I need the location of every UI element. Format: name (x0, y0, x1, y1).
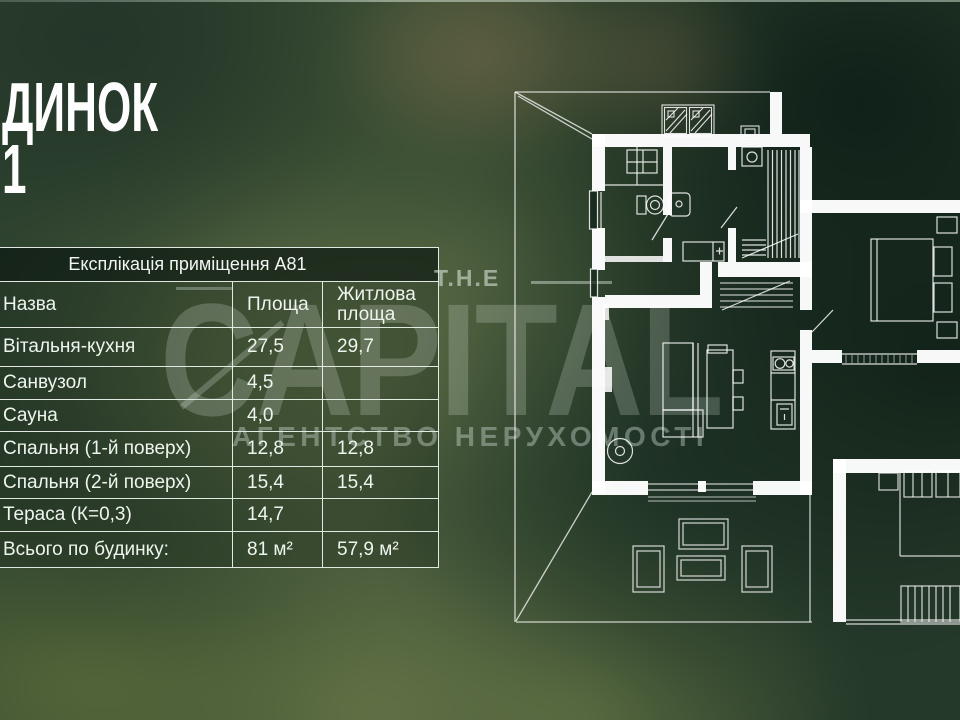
page-title-line2: 1 (2, 130, 27, 208)
room-name: Вітальня-кухня (0, 328, 233, 366)
room-area: 14,7 (233, 499, 323, 531)
room-area: 4,5 (233, 367, 323, 399)
top-edge-line (0, 0, 960, 2)
room-area: 15,4 (233, 467, 323, 498)
table-title: Експлікація приміщення А81 (0, 248, 438, 282)
room-area: 27,5 (233, 328, 323, 366)
room-living-area (323, 367, 437, 399)
laundry-appliances (662, 105, 714, 136)
table-row: Сауна 4,0 (0, 400, 438, 432)
room-name: Спальня (2-й поверх) (0, 467, 233, 498)
room-living-area: 12,8 (323, 432, 437, 466)
bathroom-fixtures (605, 147, 762, 261)
room-living-area: 15,4 (323, 467, 437, 498)
table-row: Тераса (К=0,3) 14,7 (0, 499, 438, 532)
table-row: Спальня (1-й поверх) 12,8 12,8 (0, 432, 438, 467)
living-room-furniture (608, 343, 744, 464)
floor-plan-drawing (505, 85, 960, 630)
room-name: Спальня (1-й поверх) (0, 432, 233, 466)
table-row: Спальня (2-й поверх) 15,4 15,4 (0, 467, 438, 499)
slide: T.H.E CAPITAL АГЕНТСТВО НЕРУХОМОСТІ ДИНО… (0, 0, 960, 720)
windows (590, 191, 918, 364)
room-area: 81 м² (233, 532, 323, 567)
guest-house (846, 471, 960, 624)
room-name: Тераса (К=0,3) (0, 499, 233, 531)
room-living-area (323, 499, 437, 531)
table-row: Всього по будинку: 81 м² 57,9 м² (0, 532, 438, 567)
room-living-area: 57,9 м² (323, 532, 437, 567)
bedroom-bed (812, 217, 957, 338)
terrace-furniture (633, 519, 772, 592)
room-area: 4,0 (233, 400, 323, 431)
room-living-area (323, 400, 437, 431)
column-header-area: Площа (233, 282, 323, 327)
watermark-dash-left (176, 287, 233, 290)
column-header-living-area: Житлова площа (323, 282, 437, 327)
room-area: 12,8 (233, 432, 323, 466)
room-name: Всього по будинку: (0, 532, 233, 567)
kitchen-counter (771, 351, 795, 429)
table-row: Вітальня-кухня 27,5 29,7 (0, 328, 438, 367)
explication-table: Експлікація приміщення А81 Назва Площа Ж… (0, 247, 439, 568)
room-living-area: 29,7 (323, 328, 437, 366)
page-title: ДИНОК1 (2, 76, 158, 200)
room-name: Сауна (0, 400, 233, 431)
